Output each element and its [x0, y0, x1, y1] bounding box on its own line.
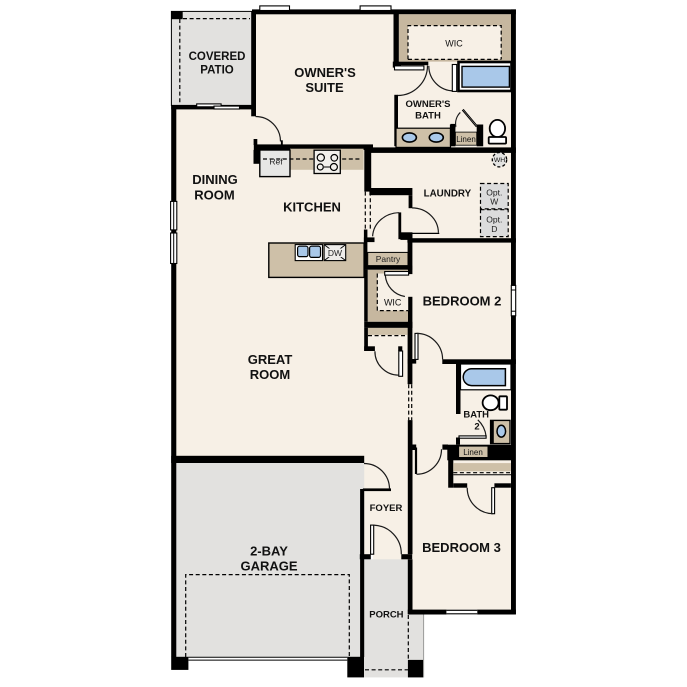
svg-text:OWNER'S: OWNER'S — [405, 99, 450, 110]
svg-text:BATH: BATH — [463, 410, 489, 421]
svg-text:Linen: Linen — [463, 448, 483, 457]
svg-text:PATIO: PATIO — [200, 65, 233, 77]
svg-text:Linen: Linen — [456, 135, 476, 144]
svg-text:W: W — [490, 197, 498, 207]
svg-text:GARAGE: GARAGE — [240, 559, 297, 574]
svg-text:Ref: Ref — [269, 157, 283, 167]
svg-text:ROOM: ROOM — [250, 367, 290, 382]
svg-text:Opt.: Opt. — [486, 214, 502, 224]
svg-text:BATH: BATH — [415, 111, 441, 122]
svg-text:BEDROOM 2: BEDROOM 2 — [423, 294, 502, 309]
svg-text:OWNER'S: OWNER'S — [294, 65, 356, 80]
svg-text:BEDROOM 3: BEDROOM 3 — [422, 540, 501, 555]
svg-text:ROOM: ROOM — [194, 188, 234, 203]
svg-text:DW: DW — [328, 248, 342, 258]
svg-text:COVERED: COVERED — [189, 51, 246, 63]
svg-text:Pantry: Pantry — [376, 254, 401, 264]
svg-text:WH: WH — [494, 157, 505, 164]
svg-text:2-BAY: 2-BAY — [250, 544, 288, 559]
svg-text:WIC: WIC — [445, 39, 463, 49]
svg-text:2: 2 — [474, 422, 479, 433]
svg-text:FOYER: FOYER — [370, 503, 403, 514]
svg-text:D: D — [491, 224, 497, 234]
svg-text:KITCHEN: KITCHEN — [283, 200, 341, 215]
svg-text:WIC: WIC — [384, 298, 402, 308]
svg-text:DINING: DINING — [192, 172, 238, 187]
svg-text:GREAT: GREAT — [248, 352, 293, 367]
svg-text:SUITE: SUITE — [305, 80, 344, 95]
svg-text:PORCH: PORCH — [369, 610, 403, 621]
svg-text:LAUNDRY: LAUNDRY — [424, 188, 472, 199]
